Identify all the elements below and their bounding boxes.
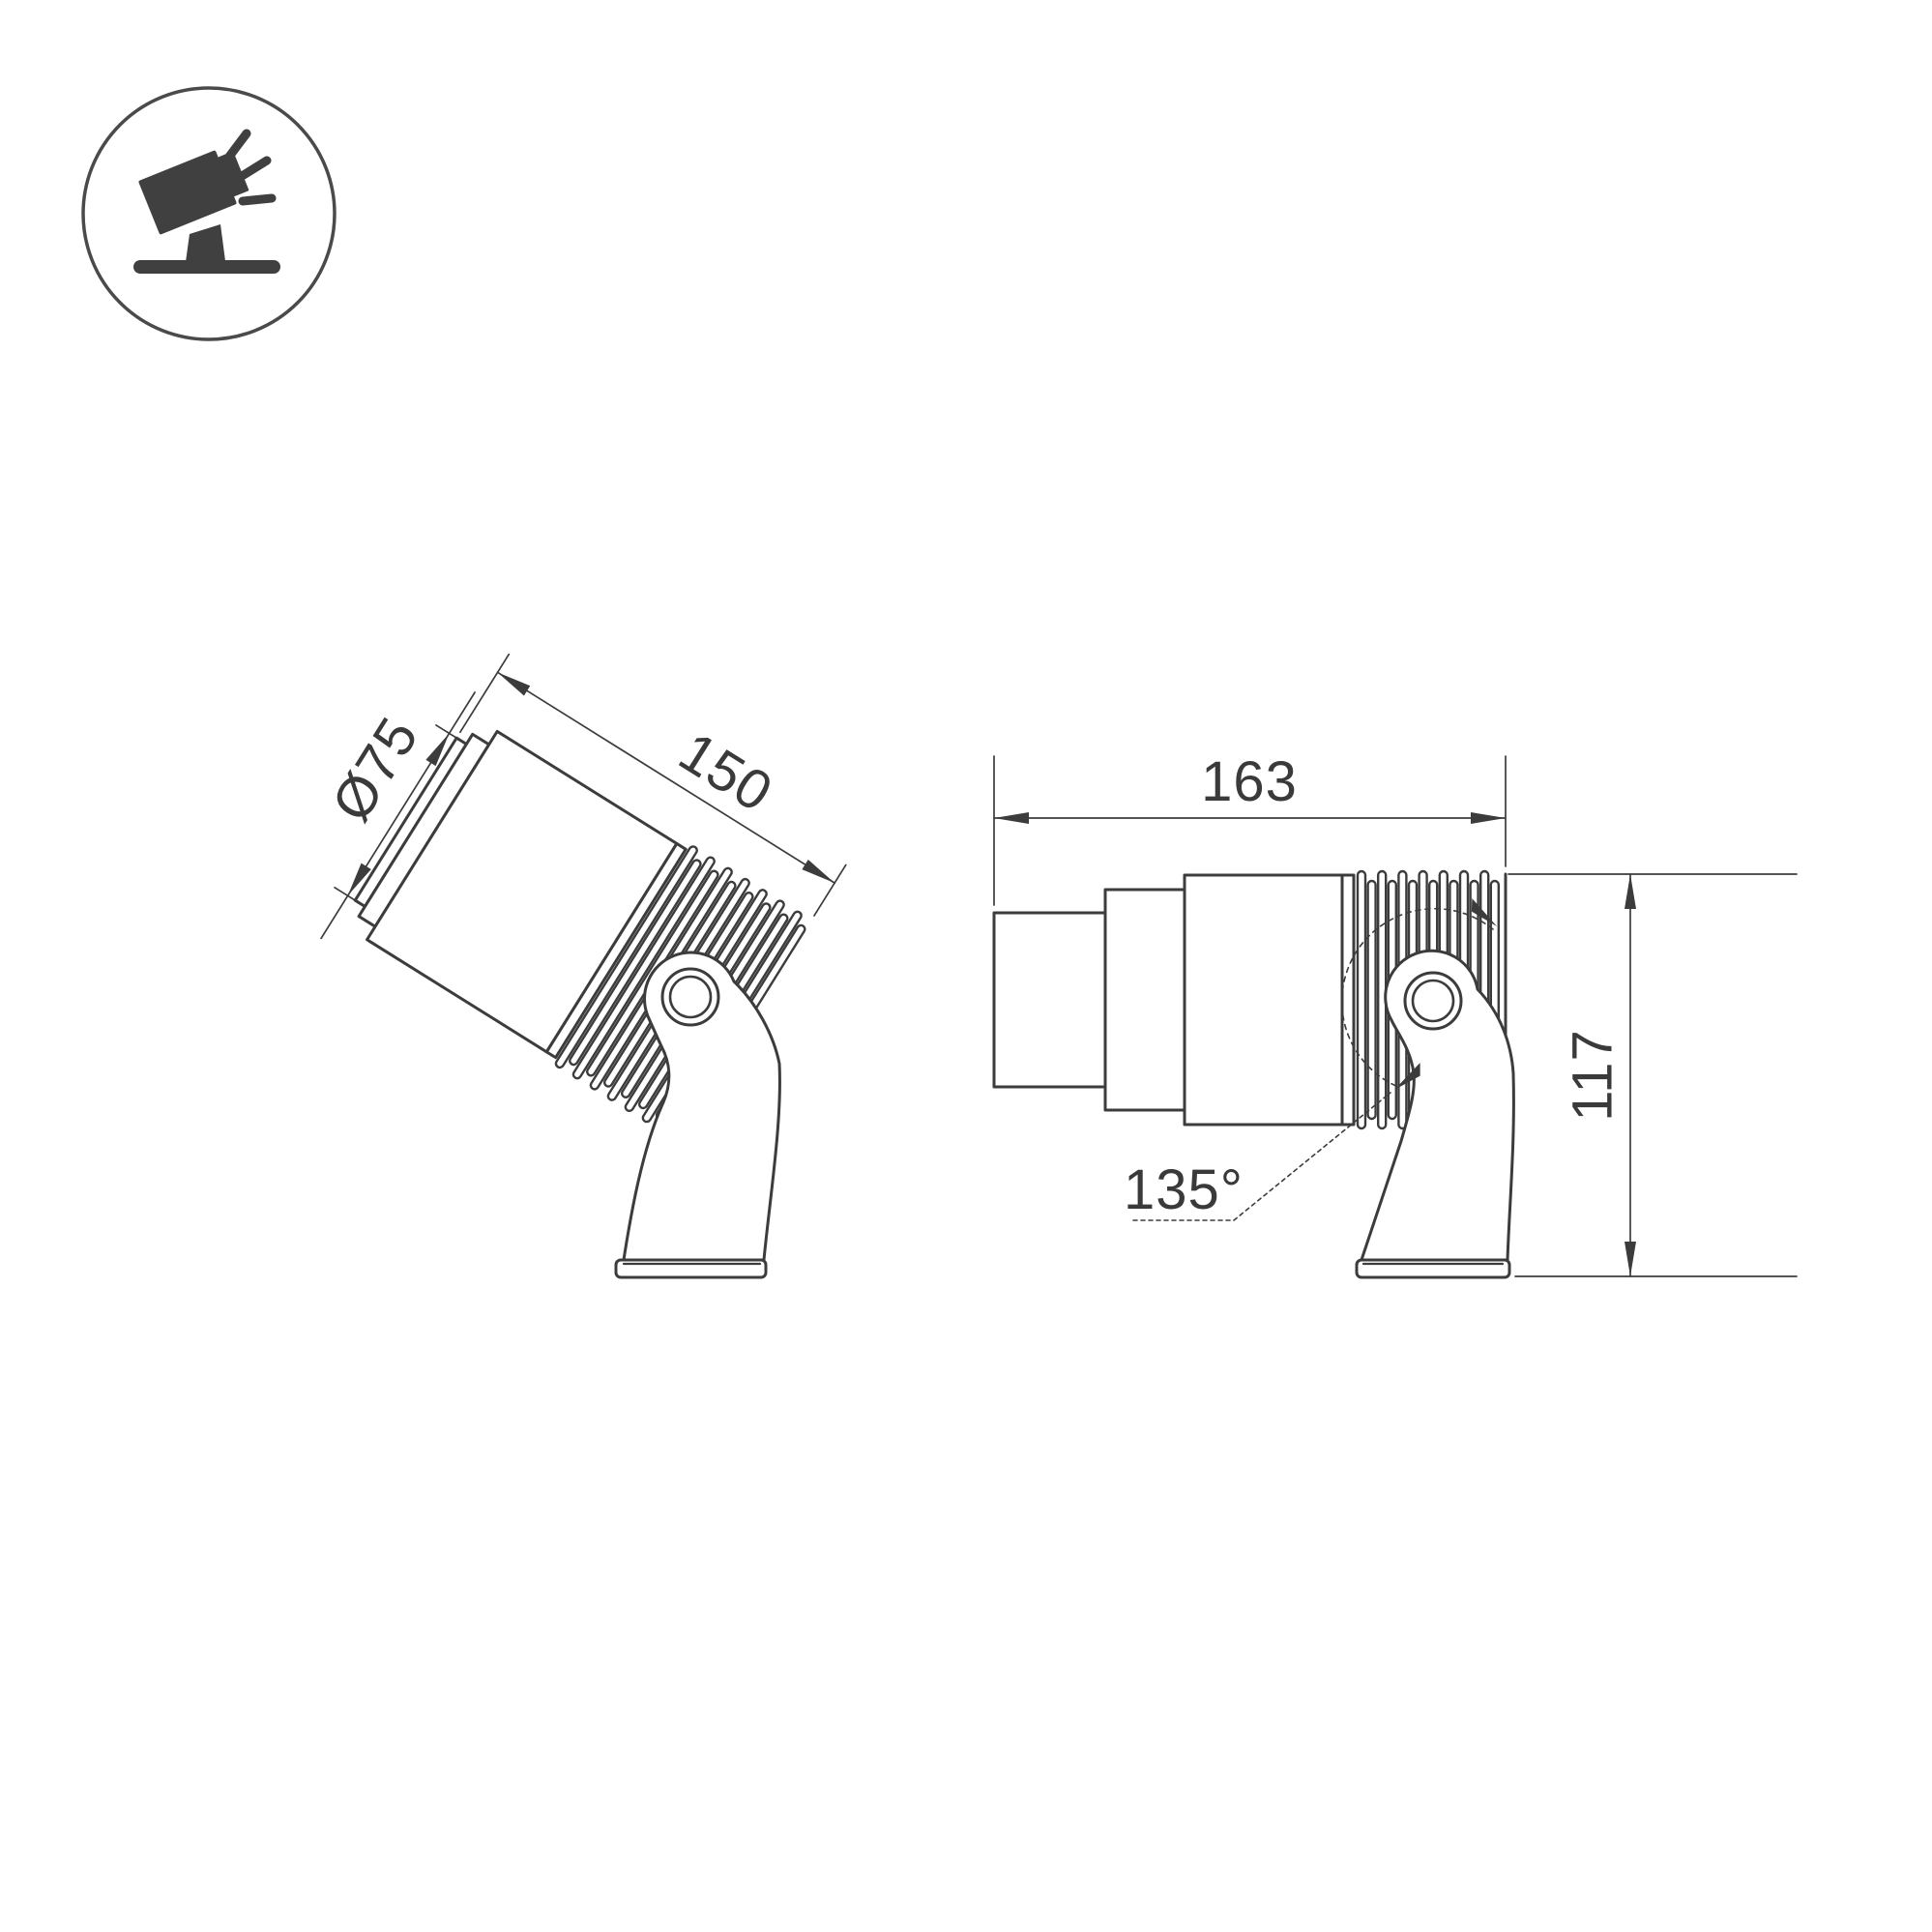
technical-drawing-canvas: 150 xyxy=(0,0,1932,1932)
height-dimension-label: 117 xyxy=(1561,1029,1624,1121)
arrowhead-left xyxy=(494,667,530,695)
arrowhead-left xyxy=(994,812,1029,824)
mid-section xyxy=(1105,890,1185,1110)
light-ray-middle xyxy=(239,161,267,178)
arrowhead-right xyxy=(1471,812,1506,824)
length-dimension-label: 150 xyxy=(668,720,783,825)
spotlight-post xyxy=(186,224,225,262)
width-dimension-label: 163 xyxy=(1201,750,1298,813)
left-view-tilted-lamp: 150 xyxy=(257,571,870,1277)
right-view-side-lamp: 135° 163 117 xyxy=(994,750,1797,1277)
extension-line-front xyxy=(460,655,509,733)
rib xyxy=(1358,871,1365,1128)
rear-cap xyxy=(994,913,1105,1087)
pivot-hole-inner xyxy=(1413,981,1453,1021)
extension-tick-top xyxy=(436,725,464,743)
bracket-base-plate xyxy=(1357,1260,1509,1277)
spotlight-badge xyxy=(83,88,335,339)
arrowhead-down xyxy=(1625,1242,1636,1276)
lamp-main-body xyxy=(1185,875,1342,1125)
spotlight-base xyxy=(133,260,280,274)
height-dimension-117 xyxy=(1508,874,1797,1276)
bracket-base-plate xyxy=(616,1260,766,1277)
body-heatsink-separator xyxy=(1342,875,1354,1125)
arrowhead-right xyxy=(802,860,837,888)
drawing-page: 150 xyxy=(0,0,1932,1932)
pivot-hole-inner xyxy=(670,977,711,1017)
rib xyxy=(1368,881,1376,1119)
arrowhead-up xyxy=(1625,874,1636,909)
light-ray-bottom xyxy=(243,198,272,201)
light-ray-top xyxy=(229,133,247,157)
angle-label: 135° xyxy=(1124,1158,1244,1221)
lamp-sections xyxy=(994,875,1354,1125)
